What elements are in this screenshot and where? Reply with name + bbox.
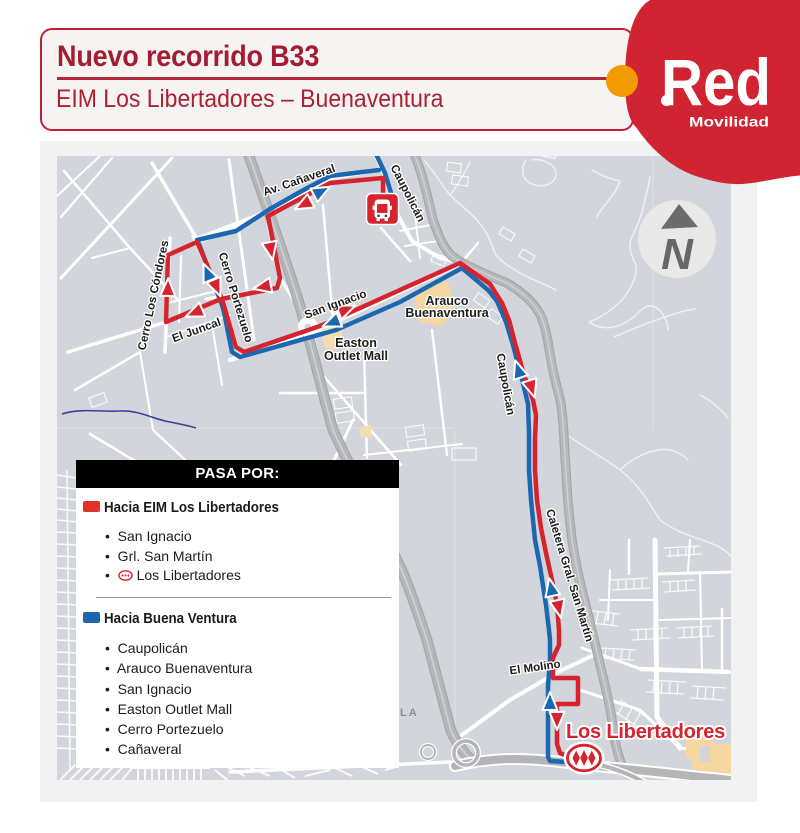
svg-text:Buenaventura: Buenaventura <box>405 306 489 320</box>
svg-text:Movilidad: Movilidad <box>689 114 769 130</box>
svg-text:N: N <box>661 230 694 279</box>
svg-text:Easton: Easton <box>335 336 377 350</box>
svg-text:Red: Red <box>661 45 771 119</box>
svg-text:Los Libertadores: Los Libertadores <box>566 721 725 743</box>
svg-text:Outlet Mall: Outlet Mall <box>324 349 388 363</box>
svg-text:LA: LA <box>400 707 419 719</box>
